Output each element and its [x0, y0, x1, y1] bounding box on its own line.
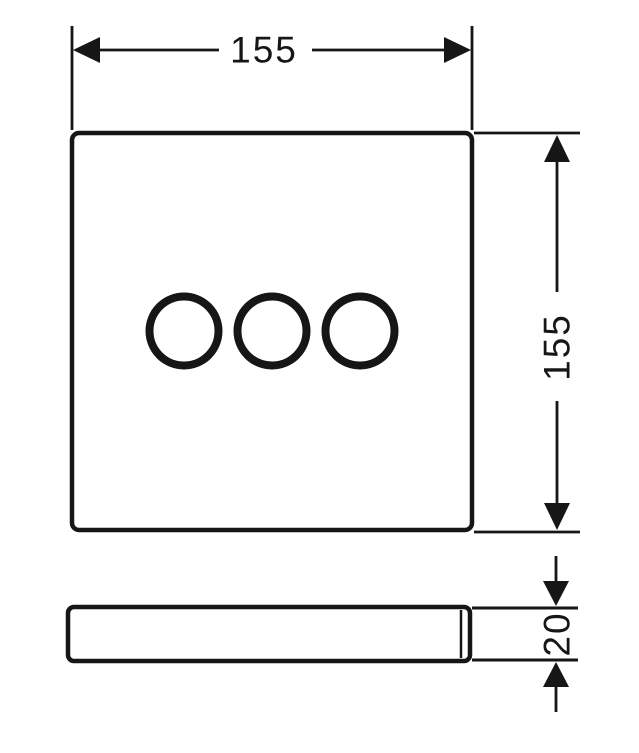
- arrowhead-right-icon: [444, 37, 471, 63]
- arrowhead-depth-down-icon: [543, 581, 569, 606]
- depth-dimension: 20: [472, 556, 578, 712]
- dimension-drawing: 155 155 20: [0, 0, 639, 753]
- button-hole-right: [326, 297, 395, 366]
- button-hole-center: [238, 297, 307, 366]
- height-dimension-label: 155: [537, 313, 578, 381]
- front-view: [72, 133, 472, 530]
- technical-drawing-canvas: 155 155 20: [0, 0, 639, 753]
- width-dimension: 155: [72, 26, 472, 130]
- plate-profile-outline: [68, 607, 470, 661]
- width-dimension-label: 155: [230, 30, 298, 71]
- arrowhead-down-icon: [544, 503, 570, 530]
- arrowhead-depth-up-icon: [543, 662, 569, 687]
- arrowhead-left-icon: [73, 37, 100, 63]
- side-view: [68, 607, 470, 661]
- height-dimension: 155: [474, 133, 580, 532]
- depth-dimension-label: 20: [537, 611, 578, 656]
- button-hole-left: [150, 297, 219, 366]
- arrowhead-up-icon: [544, 135, 570, 162]
